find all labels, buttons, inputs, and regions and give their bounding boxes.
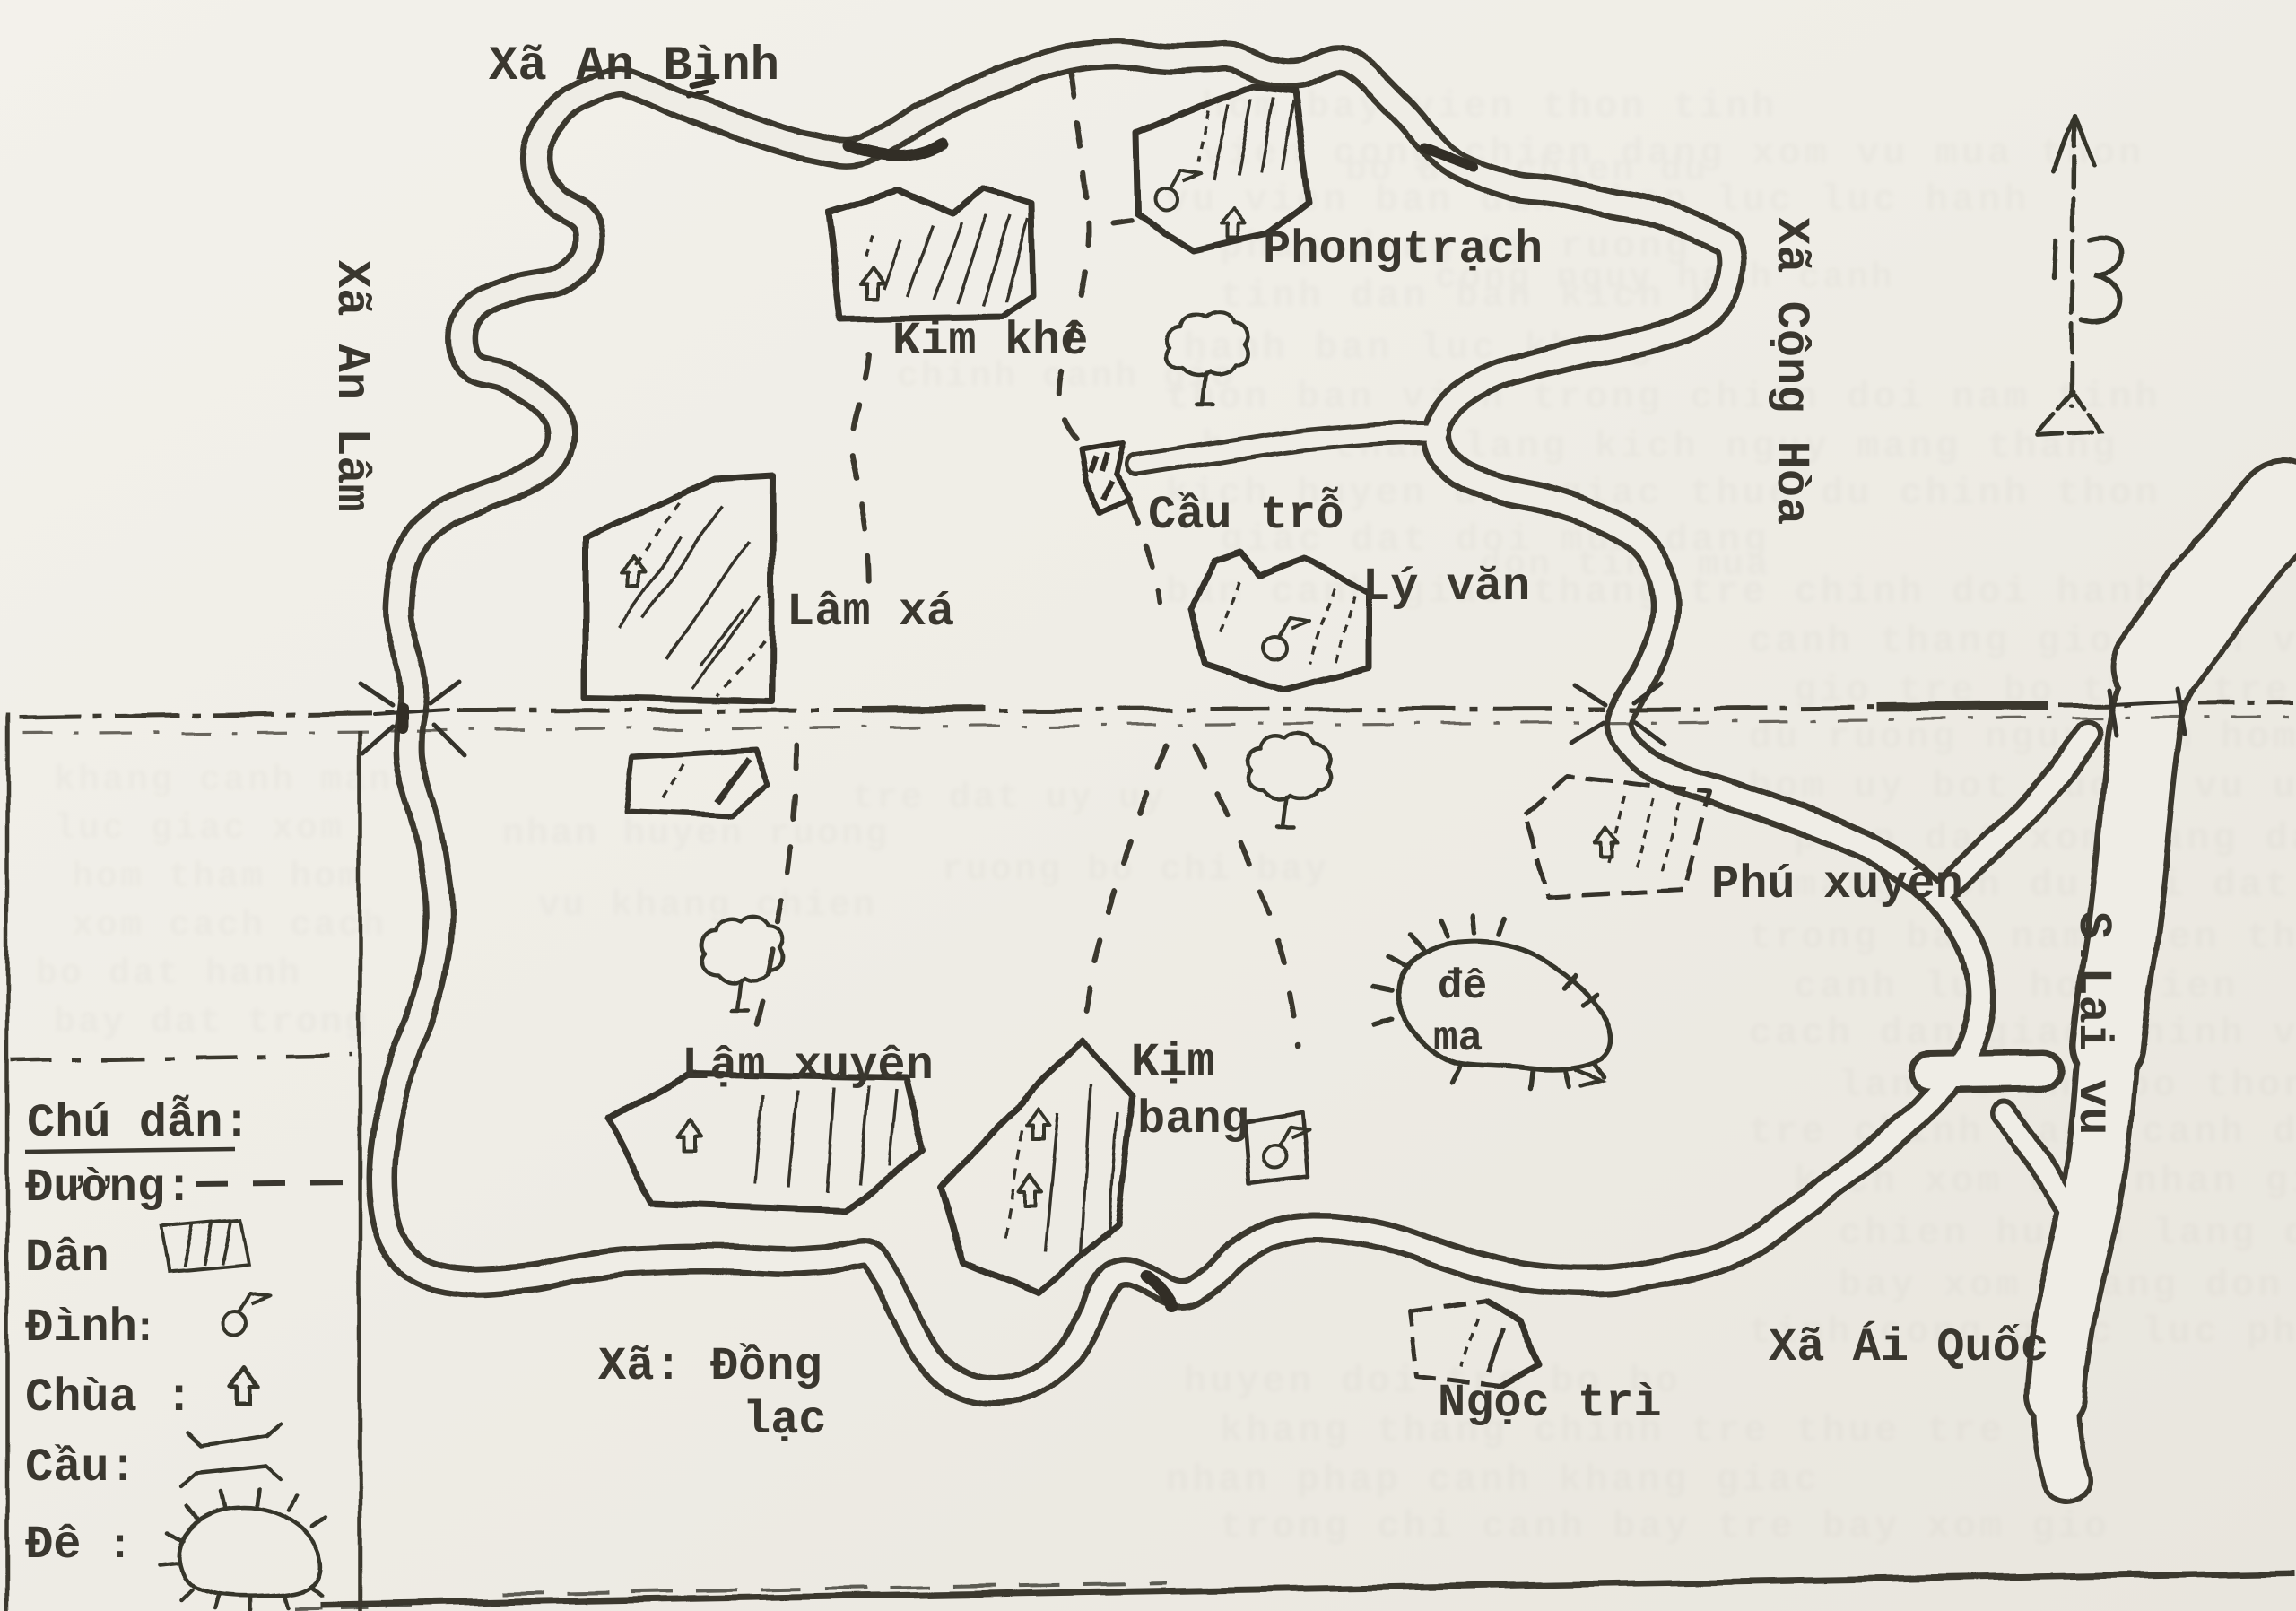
svg-text:cach dan giac chinh vien nhan: cach dan giac chinh vien nhan chi	[1749, 1012, 2296, 1055]
svg-text:Xã Cộng Hòa: Xã Cộng Hòa	[1764, 217, 1817, 525]
svg-text:hom tham hom: hom tham hom	[72, 858, 362, 898]
svg-text:Chùa :: Chùa :	[25, 1372, 193, 1424]
svg-text:Đường:: Đường:	[25, 1162, 193, 1215]
svg-text:trong bay nam vien tham nam uy: trong bay nam vien tham nam uy hom	[1749, 916, 2296, 959]
svg-text:trong chi canh bay tre bay xom: trong chi canh bay tre bay xom gio	[1220, 1505, 2110, 1548]
svg-text:đê: đê	[1438, 963, 1487, 1010]
svg-text:thon ban vien trong chien doi: thon ban vien trong chien doi nam tinh	[1166, 376, 2161, 419]
svg-text:Xã Ái Quốc: Xã Ái Quốc	[1769, 1321, 2048, 1374]
svg-text:Phú xuyên: Phú xuyên	[1711, 858, 1963, 911]
svg-text:ma: ma	[1433, 1015, 1483, 1062]
svg-text:Chú dẫn:: Chú dẫn:	[27, 1094, 251, 1150]
svg-text:Lậm xuyên: Lậm xuyên	[682, 1040, 934, 1093]
svg-text:tre dat uy uy: tre dat uy uy	[852, 779, 1167, 819]
svg-text:Lý văn: Lý văn	[1362, 561, 1530, 614]
svg-text:Xã: Đồng: Xã: Đồng	[598, 1340, 822, 1393]
svg-text::: :	[108, 1523, 133, 1570]
svg-text:bay dat trong: bay dat trong	[54, 1003, 369, 1043]
svg-text:Ngọc trì: Ngọc trì	[1438, 1377, 1662, 1430]
svg-text:Kịm: Kịm	[1131, 1036, 1215, 1089]
svg-text:nhan phap canh khang giac: nhan phap canh khang giac	[1166, 1459, 1821, 1502]
svg-text:vu khang chien: vu khang chien	[538, 886, 877, 927]
svg-text:Kim khê: Kim khê	[892, 315, 1088, 368]
svg-text:Lâm xá: Lâm xá	[787, 586, 954, 639]
svg-text:ruong bo chi bay: ruong bo chi bay	[942, 850, 1329, 891]
svg-text:xom cach cach: xom cach cach	[72, 906, 387, 946]
svg-text:bo dat hanh: bo dat hanh	[36, 954, 302, 995]
svg-text::: :	[133, 1306, 158, 1353]
svg-text:Đê: Đê	[25, 1519, 81, 1572]
svg-text:Xã An Lâm: Xã An Lâm	[325, 260, 378, 512]
svg-text:Đình: Đình	[25, 1302, 137, 1354]
svg-text:canh luc hom vien: canh luc hom vien	[1794, 965, 2239, 1008]
svg-text:bang: bang	[1137, 1093, 1249, 1146]
svg-text:nhan huyen ruong: nhan huyen ruong	[502, 814, 890, 855]
svg-text:Phongtrạch: Phongtrạch	[1263, 223, 1543, 276]
svg-text:lạc: lạc	[743, 1394, 827, 1447]
svg-text:Cầu:: Cầu:	[25, 1441, 137, 1494]
svg-text:luc giac xom: luc giac xom	[54, 809, 344, 849]
svg-text:Dân: Dân	[25, 1232, 109, 1284]
svg-text:Cầu trỗ: Cầu trỗ	[1148, 486, 1344, 542]
svg-text:Xã An Bình: Xã An Bình	[489, 39, 779, 94]
svg-text:du ruong nguy hom hom: du ruong nguy hom hom	[1749, 716, 2296, 759]
svg-text:khang canh mang: khang canh mang	[54, 761, 417, 801]
svg-text:S.Lai vu: S.Lai vu	[2066, 911, 2119, 1136]
